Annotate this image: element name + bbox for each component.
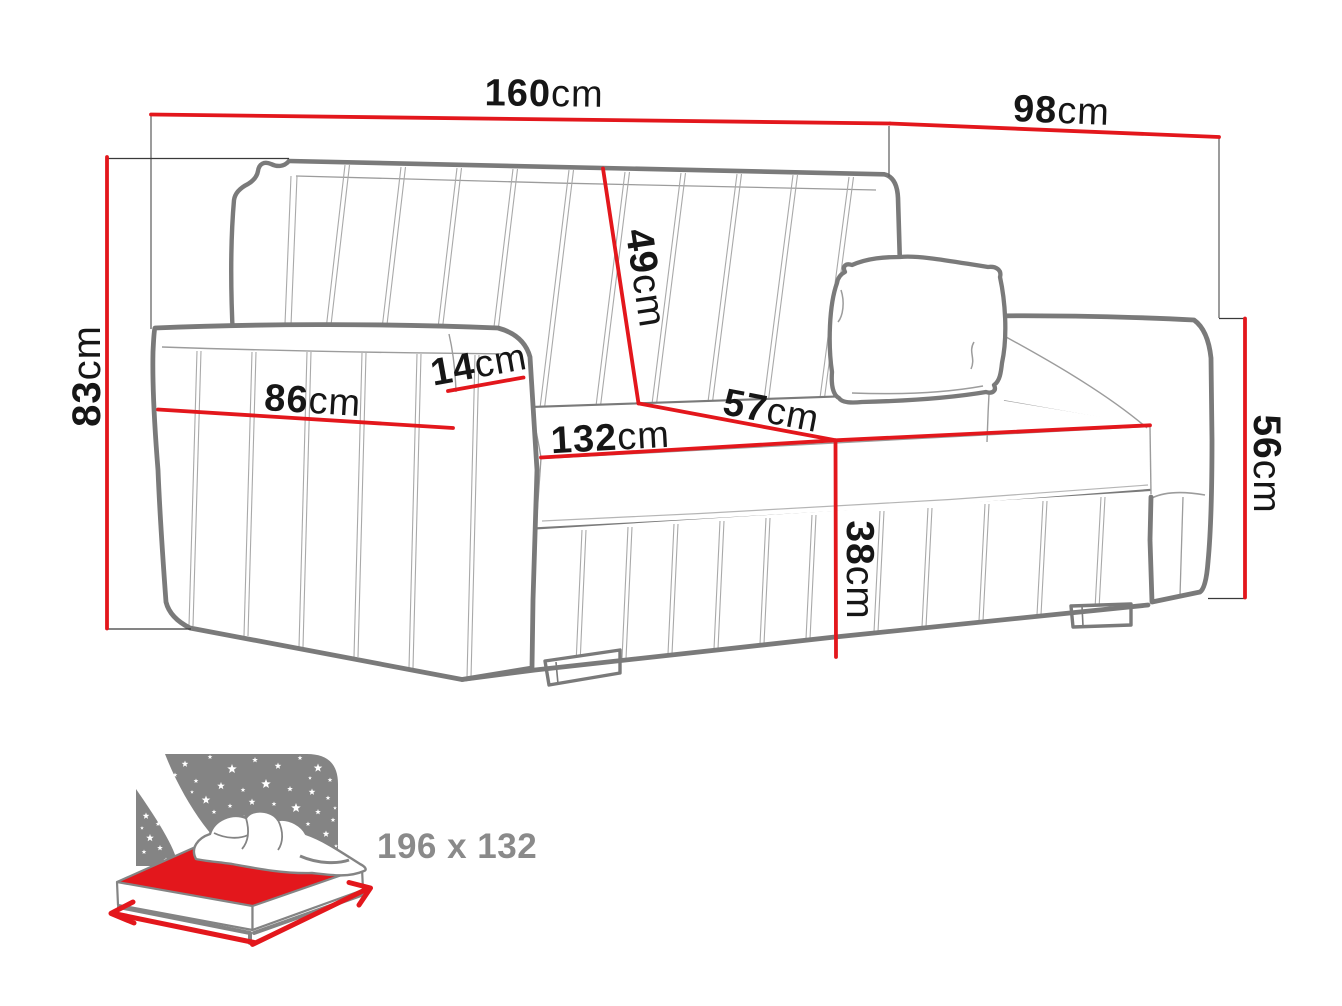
svg-text:160cm: 160cm: [484, 72, 604, 115]
svg-text:56cm: 56cm: [1245, 414, 1288, 513]
svg-text:196 x 132: 196 x 132: [377, 827, 537, 866]
svg-text:38cm: 38cm: [838, 520, 881, 619]
svg-text:86cm: 86cm: [263, 377, 362, 425]
svg-text:98cm: 98cm: [1012, 88, 1111, 134]
svg-text:132cm: 132cm: [550, 414, 671, 462]
svg-text:83cm: 83cm: [65, 325, 109, 427]
